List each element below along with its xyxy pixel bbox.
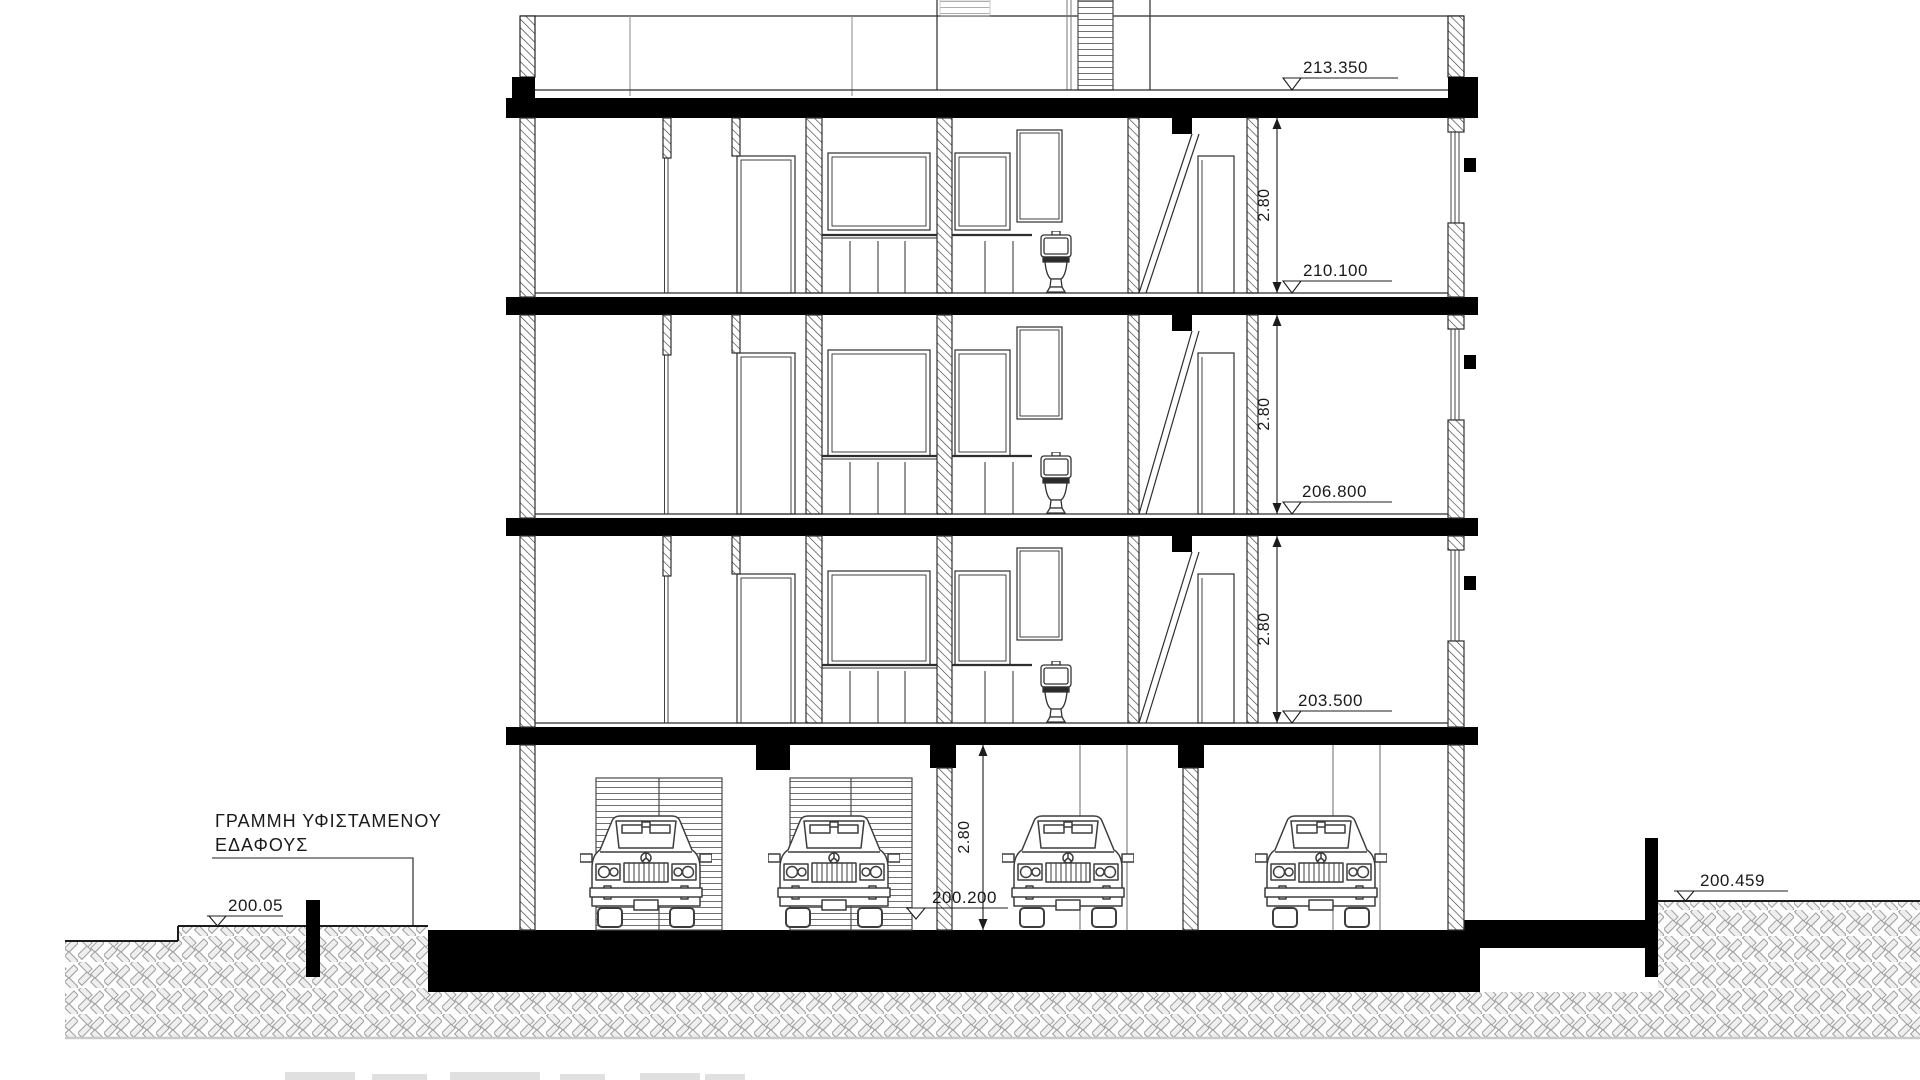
bathroom-mirror <box>1017 327 1062 419</box>
building-section-drawing: 2.80 2.80 2.80 2.80 <box>0 0 1920 1080</box>
exterior-wall-right <box>1448 118 1464 132</box>
stair-door <box>1198 353 1234 514</box>
downstand-beam <box>930 745 956 768</box>
dimension-floor2-height <box>1273 315 1282 514</box>
window-right <box>1451 132 1459 223</box>
parapet-right-base <box>1448 77 1478 99</box>
right-retaining-wall <box>1645 838 1658 977</box>
level-label-ground-right: 200.459 <box>1700 871 1765 890</box>
exterior-wall-right <box>1448 641 1464 727</box>
level-triangle-icon <box>1283 78 1301 90</box>
exterior-wall-left <box>520 745 535 930</box>
dimension-floor3-height <box>1273 118 1282 293</box>
dim-label-floor2: 2.80 <box>1256 397 1273 430</box>
kitchen-upper-unit <box>828 153 930 230</box>
floor-slabs <box>506 98 1478 745</box>
interior-wall <box>1128 315 1139 514</box>
level-triangle-icon <box>209 916 226 926</box>
ceiling-partition-stub <box>732 118 740 156</box>
level-label-floor2: 206.800 <box>1302 482 1367 501</box>
stair-beam <box>1172 118 1192 134</box>
ceiling-partition-stub <box>663 118 671 158</box>
dim-label-floor3: 2.80 <box>1256 188 1273 221</box>
architectural-section-sheet: 2.80 2.80 2.80 2.80 <box>0 0 1920 1080</box>
window-lintel-tab <box>1464 576 1476 590</box>
toilet-fixture <box>1041 231 1071 292</box>
roof-vent-grille <box>940 0 990 16</box>
slab-floor2 <box>506 518 1478 536</box>
slab-floor3 <box>506 297 1478 315</box>
stair-beam <box>1172 315 1192 331</box>
parapet-right <box>1448 16 1464 77</box>
exterior-wall-right <box>1448 223 1464 297</box>
level-label-floor1: 203.500 <box>1298 691 1363 710</box>
car-3 <box>1002 816 1134 927</box>
interior-wall <box>1128 536 1139 723</box>
interior-door <box>737 353 795 514</box>
cut-off-caption <box>285 1072 745 1080</box>
level-marker-roof <box>1283 78 1398 90</box>
kitchen-upper-unit <box>828 571 930 665</box>
exterior-wall-left <box>520 315 535 518</box>
level-label-ground-left: 200.05 <box>228 896 283 915</box>
window-right <box>1451 550 1459 641</box>
dim-label-floor1: 2.80 <box>1256 612 1273 645</box>
interior-wall <box>937 315 952 514</box>
roof <box>512 0 1478 99</box>
ground-note-line2: ΕΔΑΦΟΥΣ <box>215 835 308 855</box>
stair-flight <box>1139 552 1192 723</box>
level-triangle-icon <box>1283 281 1301 293</box>
exterior-wall-left <box>520 118 535 297</box>
dimension-floor1-height <box>1273 536 1282 723</box>
ceiling-partition-stub <box>732 536 740 574</box>
exterior-wall-right <box>1448 315 1464 329</box>
window-lintel-tab <box>1464 355 1476 369</box>
toilet-fixture <box>1041 452 1071 513</box>
level-label-parking: 200.200 <box>932 888 997 907</box>
level-marker-floor3 <box>1283 281 1392 293</box>
interior-door <box>737 156 795 293</box>
stair-flight <box>1139 134 1192 293</box>
toilet-fixture <box>1041 661 1071 722</box>
bathroom-window <box>955 571 1010 665</box>
level-marker-floor2 <box>1283 502 1392 514</box>
roof-stair-bulkhead <box>937 0 1150 90</box>
interior-wall <box>806 315 822 514</box>
interior-wall <box>1128 118 1139 293</box>
bathroom-mirror <box>1017 548 1062 640</box>
level-marker-parking <box>906 908 1008 919</box>
level-markers <box>207 78 1788 926</box>
slab-floor1 <box>506 727 1478 745</box>
kitchen-upper-unit <box>828 350 930 456</box>
bathroom-mirror <box>1017 130 1062 222</box>
interior-door <box>737 574 795 723</box>
left-garden-wall <box>306 900 320 977</box>
downstand-beam <box>756 745 790 770</box>
level-marker-floor1 <box>1283 711 1392 723</box>
interior-wall <box>806 118 822 293</box>
window-lintel-tab <box>1464 158 1476 172</box>
exterior-wall-right <box>1448 420 1464 518</box>
level-marker-ground-left <box>207 916 283 926</box>
window-right <box>1451 329 1459 420</box>
interior-wall <box>937 536 952 723</box>
stair-flight <box>1139 331 1192 514</box>
foundation-slab <box>428 920 1658 992</box>
car-4 <box>1255 816 1387 927</box>
roof-louver-shaft <box>1078 0 1113 90</box>
stair-door <box>1198 574 1234 723</box>
parking-column <box>1183 768 1198 930</box>
level-label-floor3: 210.100 <box>1303 261 1368 280</box>
exterior-wall-right <box>1448 536 1464 550</box>
exterior-wall-left <box>520 536 535 727</box>
dim-label-parking: 2.80 <box>956 820 973 853</box>
interior-wall <box>937 118 952 293</box>
interior-wall <box>806 536 822 723</box>
ground-note-line1: ΓΡΑΜΜΗ ΥΦΙΣΤΑΜΕΝΟΥ <box>215 811 442 831</box>
roof-slab <box>506 98 1478 118</box>
level-triangle-icon <box>1283 711 1301 723</box>
ceiling-partition-stub <box>663 315 671 355</box>
bathroom-window <box>955 350 1010 456</box>
exterior-wall-right <box>1448 745 1464 930</box>
ceiling-partition-stub <box>663 536 671 576</box>
bathroom-window <box>955 153 1010 230</box>
parapet-left-base <box>512 77 535 99</box>
level-triangle-icon <box>1283 502 1301 514</box>
parapet-left <box>520 16 535 77</box>
level-marker-ground-right <box>1674 891 1788 901</box>
level-triangle-icon <box>1677 891 1694 901</box>
level-label-roof: 213.350 <box>1303 58 1368 77</box>
stair-beam <box>1172 536 1192 552</box>
ceiling-partition-stub <box>732 315 740 353</box>
stair-door <box>1198 156 1234 293</box>
downstand-beam <box>1178 745 1204 768</box>
